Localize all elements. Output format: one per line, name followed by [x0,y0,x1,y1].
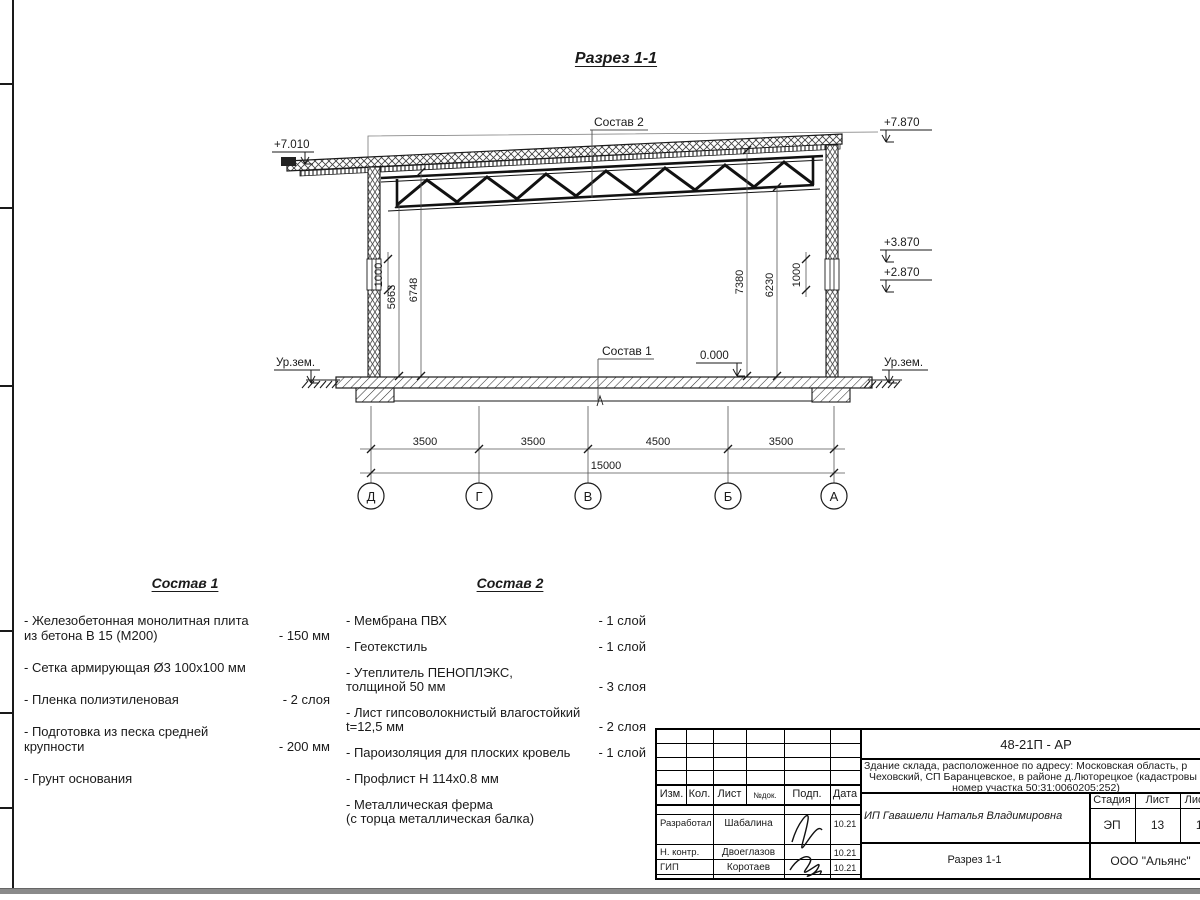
axis-label-b: Б [724,489,733,504]
dim-span-3: 4500 [646,436,670,448]
elevation-right-top-label: +7.870 [884,117,920,129]
ground-right-label: Ур.зем. [884,357,923,369]
sostav1-list: - Железобетонная монолитная плита из бет… [24,613,330,803]
ground-mark-right [882,370,928,383]
dim-span-1: 3500 [413,436,437,448]
row-name: Шабалина [713,818,784,829]
callout-floor: Состав 1 [598,344,654,401]
sostav2-title: Состав 2 [425,575,595,591]
row-role: Н. контр. [660,847,713,858]
col-data: Дата [830,788,860,800]
elevation-zero-label: 0.000 [700,350,729,362]
sheet-label: Лист [1135,794,1180,806]
signatures [784,804,830,878]
fold-tick [0,630,13,632]
list-item: - Железобетонная монолитная плита из бет… [24,613,330,643]
elevation-left-top-label: +7.010 [274,139,310,151]
dim-5663: 5663 [386,285,398,309]
bottom-dimension-chain: 3500 3500 4500 3500 15000 Д Г В Б А [358,406,847,509]
elevation-zero [696,363,745,376]
list-item: - Пароизоляция для плоских кровель- 1 сл… [346,746,646,760]
stage-value: ЭП [1089,818,1135,832]
doc-title: Разрез 1-1 [860,854,1089,866]
fold-tick [0,712,13,714]
fold-tick [0,807,13,809]
axis-label-g: Г [475,489,482,504]
elevation-right-mid-lower-label: +2.870 [884,267,920,279]
dim-left-wall-band: 1000 [373,263,385,287]
col-izm: Изм. [657,788,686,800]
elevation-right-mid-upper [880,250,932,262]
dim-span-4: 3500 [769,436,793,448]
right-wall [825,145,839,378]
col-podp: Подп. [784,788,830,800]
ground-mark-left [274,370,320,383]
list-item: - Металлическая ферма (с торца металличе… [346,798,646,826]
elevation-right-top [880,130,932,142]
ground-left-label: Ур.зем. [276,357,315,369]
title-block: Изм. Кол. Лист №док. Подп. Дата Разработ… [655,728,1200,880]
sheets-value: 15 [1180,818,1200,832]
company-name: ООО "Альянс" [1089,854,1200,868]
row-role: Разработал [660,818,713,829]
elevation-right-mid-lower [880,280,932,292]
list-item: - Утеплитель ПЕНОПЛЭКС, толщиной 50 мм- … [346,666,646,694]
dim-span-2: 3500 [521,436,545,448]
list-item: - Профлист Н 114х0.8 мм [346,772,646,786]
drawing-sheet: { "drawing": { "title": "Разрез 1-1", "e… [0,0,1200,900]
list-item: - Грунт основания [24,771,330,786]
project-description-line3: номер участка 50:31:0060205:252) [860,782,1200,794]
axis-label-d: Д [367,489,376,504]
sostav1-title: Состав 1 [100,575,270,591]
row-role: ГИП [660,862,713,873]
col-kol: Кол. [686,788,713,800]
client-name: ИП Гавашели Наталья Владимировна [864,810,1086,822]
row-date: 10.21 [830,848,860,858]
axis-label-a: А [830,489,839,504]
axis-label-v: В [584,489,593,504]
sheet-value: 13 [1135,818,1180,832]
row-name: Коротаев [713,862,784,873]
col-list: Лист [713,788,746,800]
list-item: - Подготовка из песка средней крупности-… [24,724,330,754]
right-wall-opening [825,259,839,290]
dim-7380: 7380 [734,270,746,294]
section-drawing: 1000 5663 6748 7380 6230 1000 [0,0,1200,560]
col-ndok: №док. [746,791,784,800]
foundation-pad-left [356,388,394,402]
foundation-pad-right [812,388,850,402]
list-item: - Пленка полиэтиленовая- 2 слоя [24,692,330,707]
svg-text:Состав 1: Состав 1 [602,344,652,358]
svg-text:Состав 2: Состав 2 [594,115,644,129]
row-date: 10.21 [830,819,860,829]
list-item: - Лист гипсоволокнистый влагостойкий t=1… [346,706,646,734]
list-item: - Геотекстиль- 1 слой [346,640,646,654]
sheets-label: Листов [1180,794,1200,806]
axis-bubbles [358,483,847,509]
row-date: 10.21 [830,863,860,873]
sheet-frame-bottom [0,888,1200,894]
floor-slab [336,377,872,406]
dim-right-wall-band: 1000 [791,263,803,287]
doc-code: 48-21П - АР [860,737,1200,752]
row-name: Двоеглазов [713,847,784,858]
roof-edge-cap [281,157,296,166]
list-item: - Сетка армирующая Ø3 100х100 мм [24,660,330,675]
sostav2-list: - Мембрана ПВХ- 1 слой - Геотекстиль- 1 … [346,614,646,838]
list-item: - Мембрана ПВХ- 1 слой [346,614,646,628]
dim-6748: 6748 [408,278,420,302]
stage-label: Стадия [1089,794,1135,806]
elevation-right-mid-upper-label: +3.870 [884,237,920,249]
dim-total: 15000 [591,460,622,472]
dim-6230: 6230 [764,273,776,297]
